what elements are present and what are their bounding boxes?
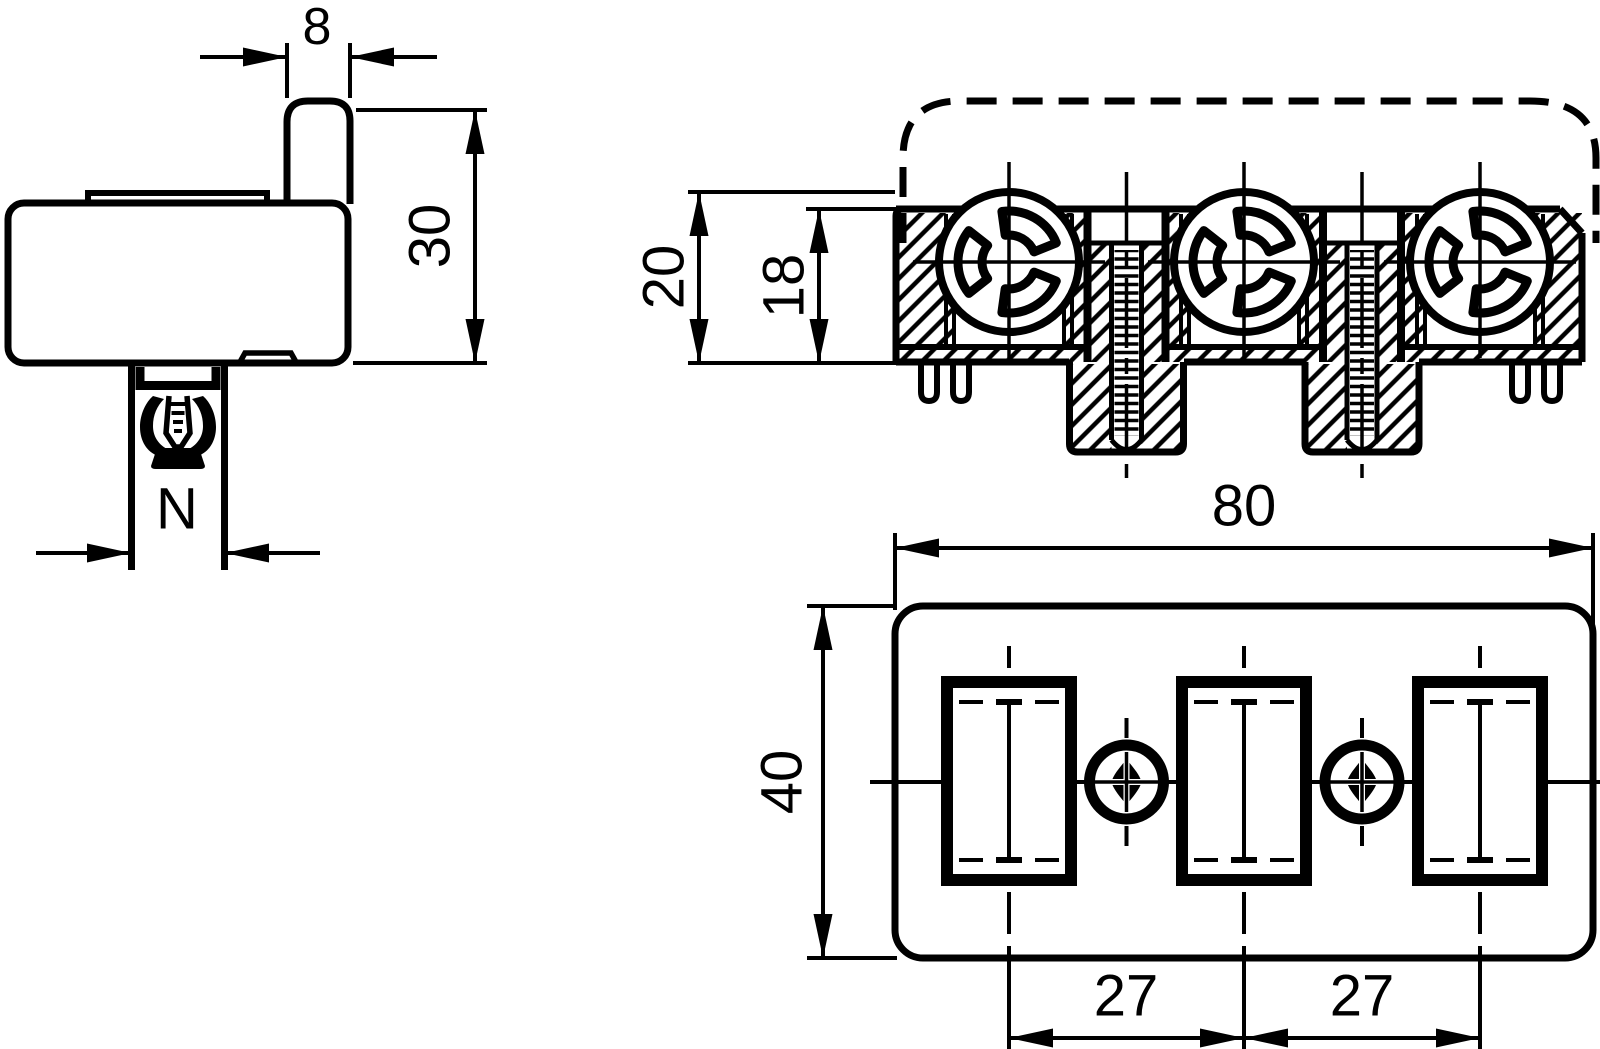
dim-label-body-height: 18 [751, 254, 816, 319]
dim-label-width: 80 [1212, 473, 1277, 538]
side-body [8, 203, 348, 363]
dim-label-side-height: 30 [397, 204, 462, 269]
dim-label-overall-height: 20 [631, 245, 696, 310]
dim-label-tab-width: 8 [303, 0, 332, 56]
dim-label-pitch-left: 27 [1094, 963, 1159, 1028]
dim-label-pitch-right: 27 [1330, 963, 1395, 1028]
dim-label-foot-width: N [156, 476, 198, 541]
dim-label-depth: 40 [749, 750, 814, 815]
technical-drawing-svg: 8 30 N [0, 0, 1600, 1049]
technical-drawing-page: 8 30 N [0, 0, 1600, 1049]
